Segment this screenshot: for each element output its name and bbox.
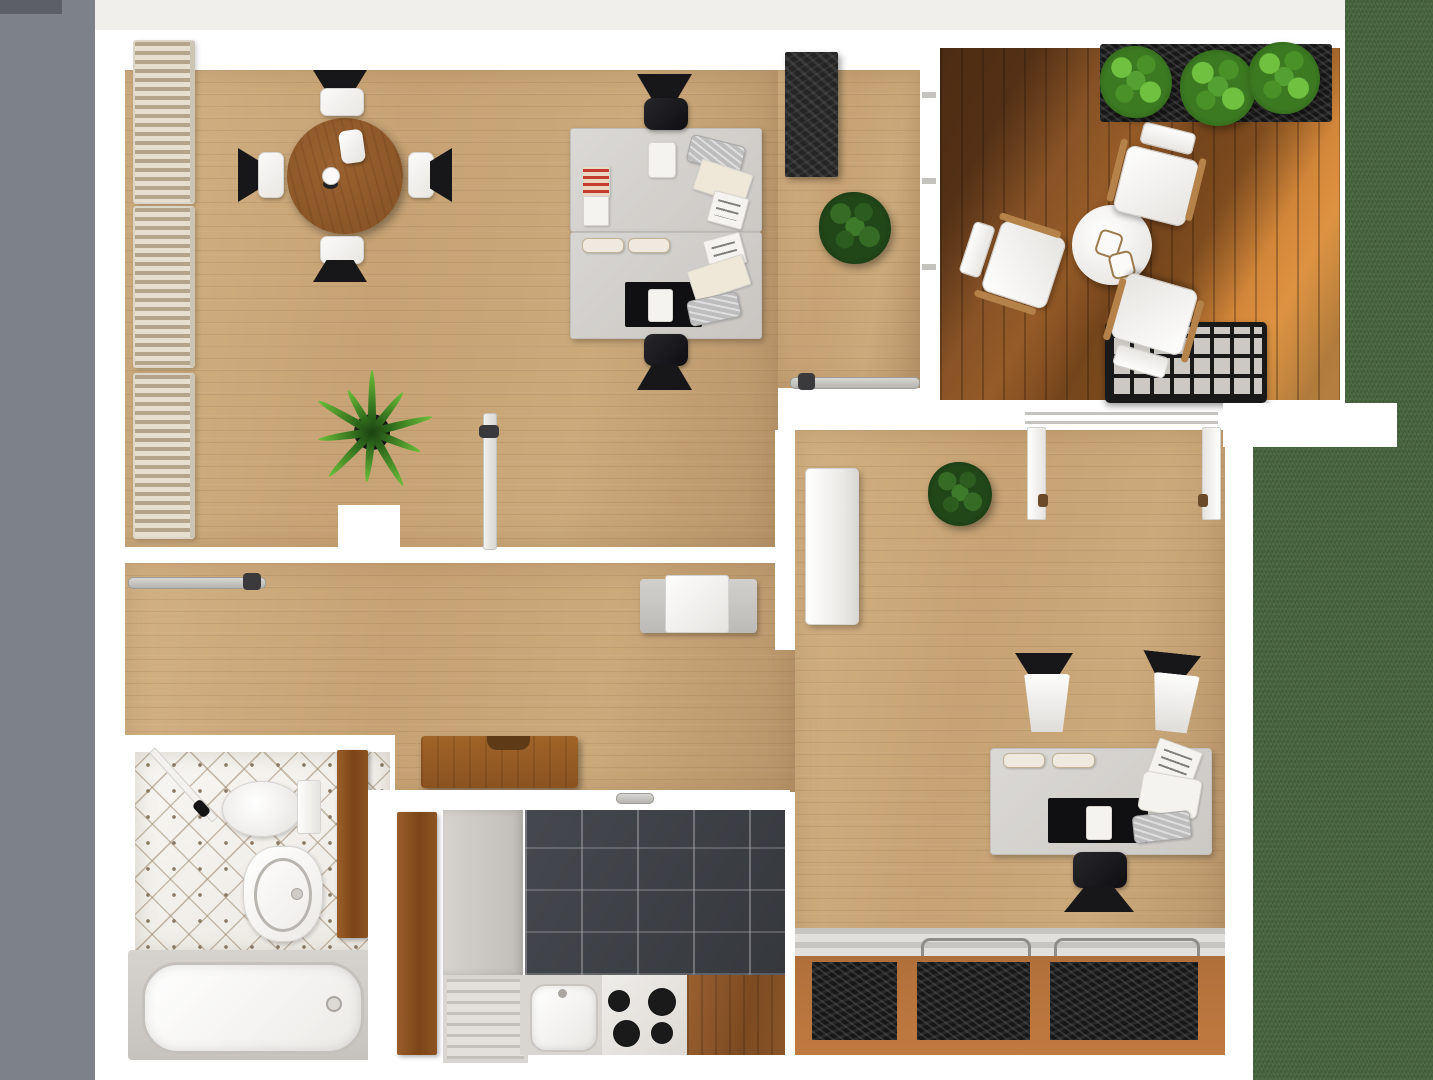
glass-wall-mullion	[922, 92, 936, 98]
radiator	[133, 373, 195, 539]
stove-burner	[648, 988, 676, 1016]
exterior-sidewalk-dark-notch	[0, 0, 62, 14]
wash-basin	[222, 781, 302, 837]
french-door-track	[1025, 412, 1218, 415]
lounge-chair-west	[955, 213, 1069, 311]
door-handle	[1038, 494, 1048, 507]
lounge-chair-north	[1111, 119, 1204, 230]
black-sideboard	[785, 52, 838, 177]
potted-plant	[928, 462, 992, 526]
stove-burner	[608, 990, 630, 1012]
potted-plant	[819, 192, 891, 264]
balcony-bush-plant	[1248, 42, 1320, 114]
floor-plan	[0, 0, 1433, 1080]
sink-faucet	[558, 989, 567, 998]
dining-chair-seat	[320, 236, 364, 264]
phone-on-mat	[648, 289, 673, 322]
office-chair-seat	[644, 334, 688, 366]
basin-shelf	[297, 780, 321, 834]
fridge-cabinet	[443, 810, 523, 975]
office-chair-seat	[1073, 852, 1127, 888]
stove-burner	[613, 1020, 640, 1047]
stove-burner	[651, 1022, 673, 1044]
bathroom-door-leaf	[337, 750, 368, 938]
wood-worktop	[687, 975, 785, 1055]
tv-cabinet	[805, 468, 859, 625]
french-door-track	[1025, 421, 1218, 424]
kitchen-door-leaf	[397, 812, 437, 1055]
cup	[322, 167, 340, 185]
lawn-top-right	[1345, 0, 1433, 450]
door-handle	[479, 425, 499, 438]
door-handle	[1198, 494, 1208, 507]
glass-wall-mullion	[922, 264, 936, 270]
red-striped-notepad	[582, 166, 610, 198]
bathtub-drain	[326, 996, 342, 1012]
dresser-handle-notch	[487, 736, 530, 750]
wall-living-pillar	[338, 505, 400, 549]
door-handle	[798, 373, 815, 390]
keyboard-tray	[628, 238, 670, 253]
floor-planter	[917, 962, 1030, 1040]
potted-palm-plant	[317, 372, 427, 492]
exterior-top-margin	[95, 0, 1345, 30]
pitcher	[338, 128, 366, 164]
radiator	[133, 40, 195, 204]
dining-chair-seat	[320, 88, 364, 116]
dining-chair-seat	[258, 152, 284, 198]
toilet-flush-button	[291, 888, 303, 900]
balcony-bush-plant	[1100, 46, 1172, 118]
kitchen-tile-floor	[525, 810, 785, 975]
kitchen-doorway-threshold	[616, 793, 654, 804]
lawn-right	[1253, 447, 1433, 1080]
keyboard-tray	[1052, 753, 1095, 768]
exterior-sidewalk	[0, 0, 95, 1080]
white-monitor	[648, 142, 676, 178]
keyboard-tray	[582, 238, 624, 253]
floor-planter	[1050, 962, 1198, 1040]
phone-on-mat	[1086, 806, 1112, 840]
radiator	[133, 206, 195, 368]
floor-planter	[812, 962, 897, 1040]
glass-wall-mullion	[922, 178, 936, 184]
toilet-bowl-rim	[254, 858, 312, 932]
keyboard-tray	[1003, 753, 1045, 768]
office-chair-seat	[644, 98, 688, 130]
wall-hall-office-divider	[775, 430, 795, 650]
white-notepad	[583, 196, 609, 226]
door-handle	[243, 573, 261, 590]
drainboard	[443, 975, 528, 1063]
stove	[602, 975, 687, 1055]
hall-table-top	[665, 575, 729, 633]
wall-garden-corner	[1223, 403, 1397, 447]
balcony-bush-plant	[1180, 50, 1256, 126]
